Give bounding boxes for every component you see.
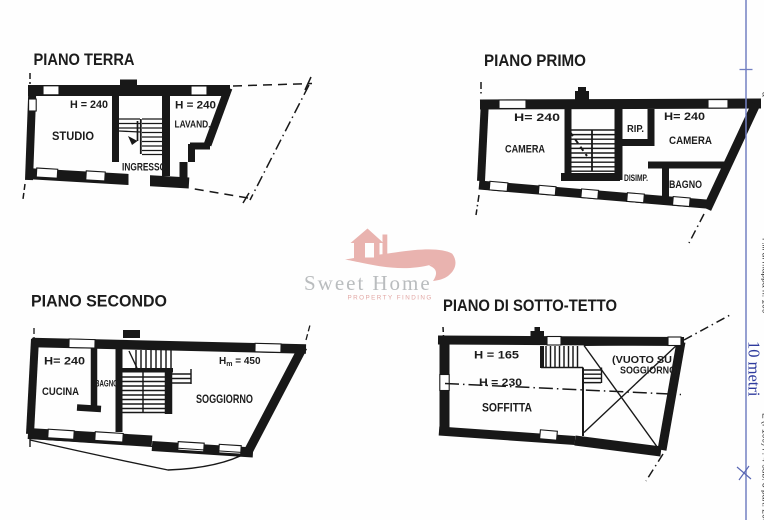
svg-text:SweetHome: SweetHome xyxy=(304,271,432,295)
svg-text:H = 230: H = 230 xyxy=(479,377,522,389)
svg-text:SOGGIORNO: SOGGIORNO xyxy=(196,394,253,406)
svg-text:INGRESSO: INGRESSO xyxy=(122,162,166,174)
svg-text:PIANO DI SOTTO-TETTO: PIANO DI SOTTO-TETTO xyxy=(443,297,617,315)
svg-text:CAMERA: CAMERA xyxy=(505,144,545,156)
svg-text:PIANO PRIMO: PIANO PRIMO xyxy=(484,52,586,70)
svg-text:H= 240: H= 240 xyxy=(514,112,560,124)
svg-text:H= 240: H= 240 xyxy=(44,356,85,368)
svg-text:BAGNO: BAGNO xyxy=(669,179,702,191)
svg-text:10 metri: 10 metri xyxy=(745,341,764,397)
svg-text:H= 240: H= 240 xyxy=(664,111,705,123)
svg-text:PROPERTY FINDING: PROPERTY FINDING xyxy=(348,295,433,302)
svg-text:(VUOTO SU: (VUOTO SU xyxy=(612,355,672,366)
svg-text:RIP.: RIP. xyxy=(627,124,644,135)
svg-text:DISIMP.: DISIMP. xyxy=(624,173,648,184)
svg-text:SOFFITTA: SOFFITTA xyxy=(482,403,532,415)
svg-text:SOGGIORNO): SOGGIORNO) xyxy=(620,366,679,377)
svg-text:Hm = 450: Hm = 450 xyxy=(219,356,261,368)
svg-text:PIANO TERRA: PIANO TERRA xyxy=(34,51,135,69)
svg-text:H = 165: H = 165 xyxy=(474,350,519,362)
svg-text:STUDIO: STUDIO xyxy=(52,129,94,143)
svg-text:PIANO SECONDO: PIANO SECONDO xyxy=(31,293,167,311)
svg-text:F.lli di mappa n. 109: F.lli di mappa n. 109 xyxy=(761,238,764,314)
svg-text:LAVAND.: LAVAND. xyxy=(175,120,211,131)
svg-text:BAGNO: BAGNO xyxy=(95,379,118,390)
svg-text:CAMERA: CAMERA xyxy=(669,135,712,147)
svg-text:CUCINA: CUCINA xyxy=(42,386,79,398)
svg-text:a: a xyxy=(761,92,764,97)
svg-text:H = 240: H = 240 xyxy=(70,99,108,111)
svg-text:E (I-109) F. 4 sub. 3 part.: E (I-109) F. 4 sub. 3 part. 209 xyxy=(761,413,764,520)
svg-text:H = 240: H = 240 xyxy=(175,100,216,112)
